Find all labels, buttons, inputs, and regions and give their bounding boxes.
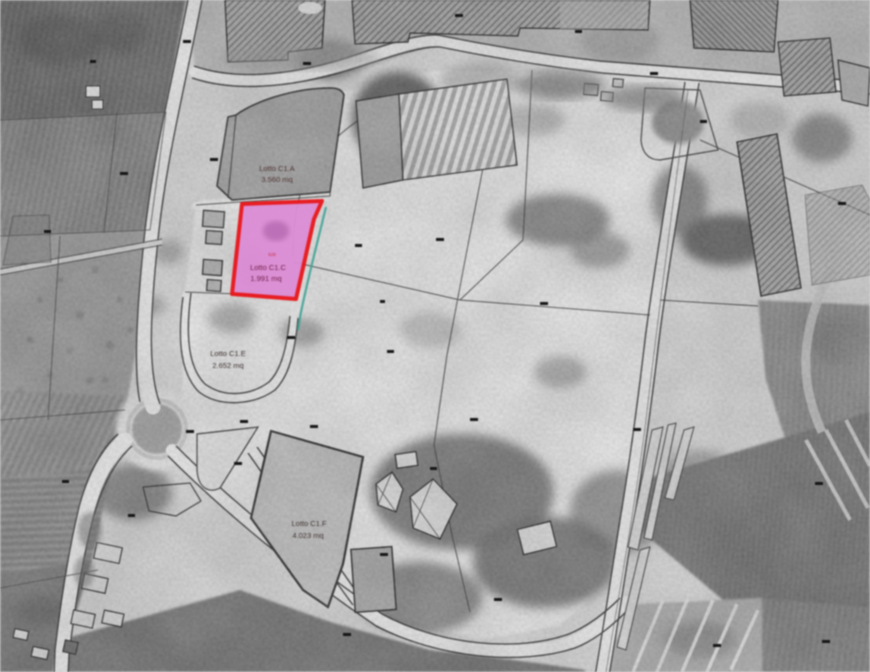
- svg-text:1.991 mq: 1.991 mq: [250, 274, 281, 283]
- svg-text:2.652 mq: 2.652 mq: [212, 361, 243, 370]
- svg-text:Lotto C1.F: Lotto C1.F: [291, 519, 326, 528]
- svg-text:628: 628: [268, 252, 276, 257]
- svg-text:4.023 mq: 4.023 mq: [292, 531, 323, 540]
- svg-text:Lotto C1.A: Lotto C1.A: [259, 164, 294, 173]
- svg-text:3.560 mq: 3.560 mq: [261, 175, 292, 184]
- svg-text:Lotto C1.E: Lotto C1.E: [210, 349, 245, 358]
- svg-text:Lotto C1.C: Lotto C1.C: [250, 263, 286, 272]
